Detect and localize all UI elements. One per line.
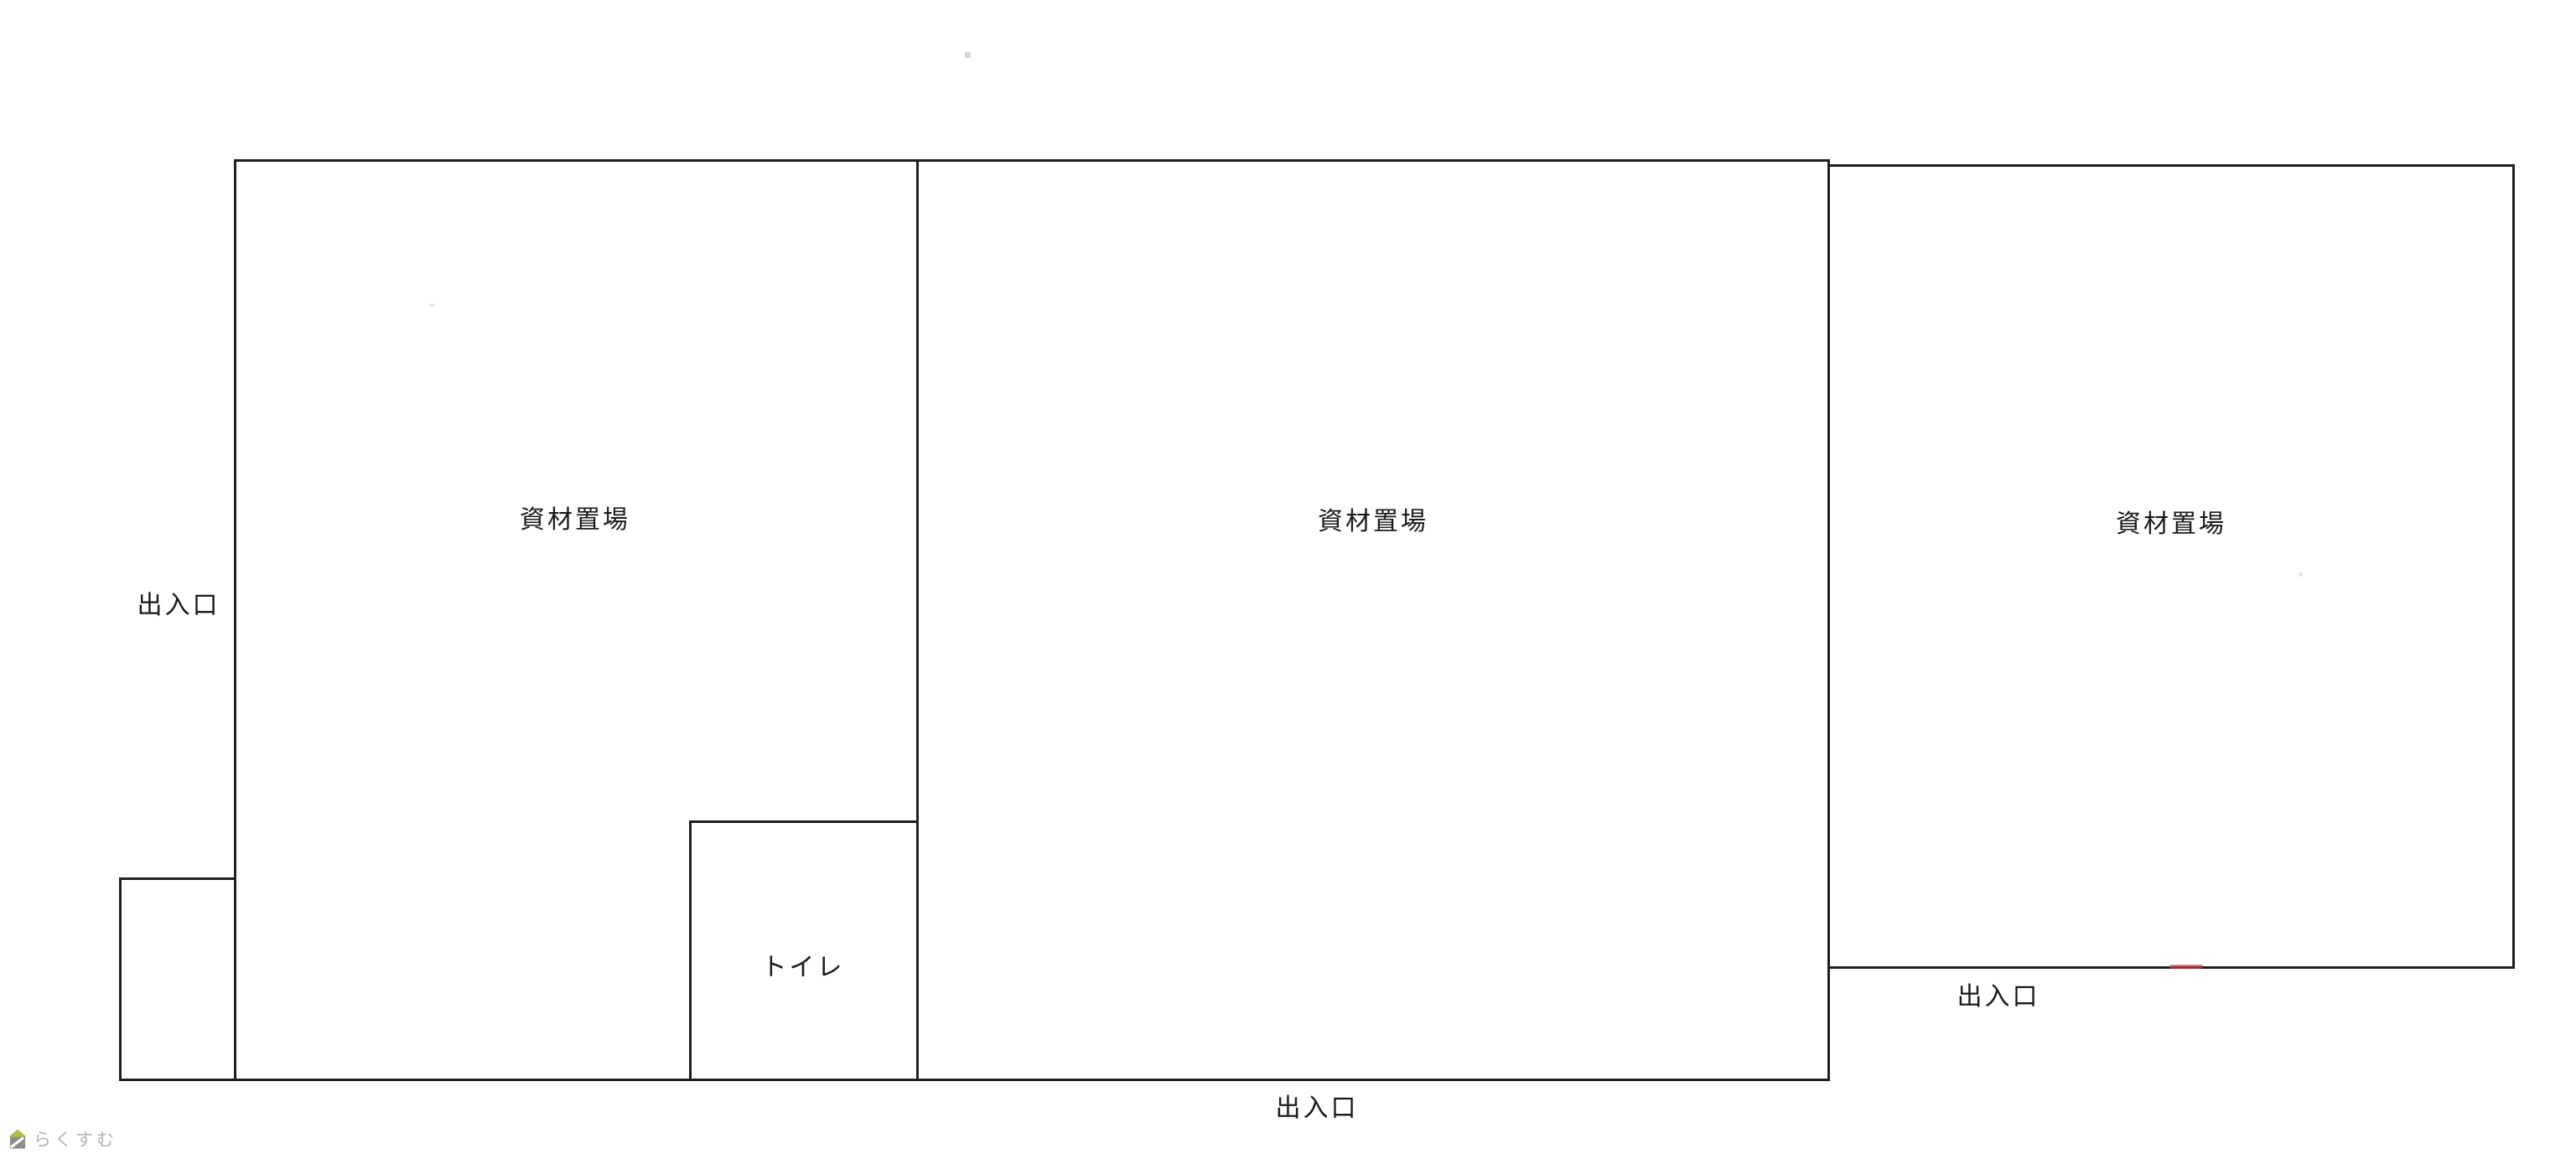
house-icon <box>8 1128 28 1150</box>
scan-speck <box>2299 572 2303 577</box>
entrance-label-left: 出入口 <box>137 584 220 621</box>
scan-speck <box>965 52 971 58</box>
room-label-storage-middle: 資材置場 <box>1318 500 1428 537</box>
room-label-toilet: トイレ <box>762 946 845 983</box>
watermark-logo: らくすむ <box>8 1126 117 1151</box>
room-label-storage-right: 資材置場 <box>2116 503 2226 540</box>
entrance-label-right: 出入口 <box>1957 975 2040 1012</box>
room-annex <box>119 877 236 1081</box>
room-label-storage-left: 資材置場 <box>520 499 630 536</box>
red-mark <box>2169 965 2203 969</box>
floorplan-canvas: 資材置場 資材置場 資材置場 トイレ 出入口 出入口 出入口 らくすむ <box>0 0 2576 1154</box>
entrance-label-bottom: 出入口 <box>1276 1087 1359 1124</box>
room-storage-right <box>1827 164 2515 969</box>
room-storage-middle <box>916 159 1830 1081</box>
scan-speck <box>430 303 434 307</box>
watermark-brand-text: らくすむ <box>34 1126 117 1151</box>
